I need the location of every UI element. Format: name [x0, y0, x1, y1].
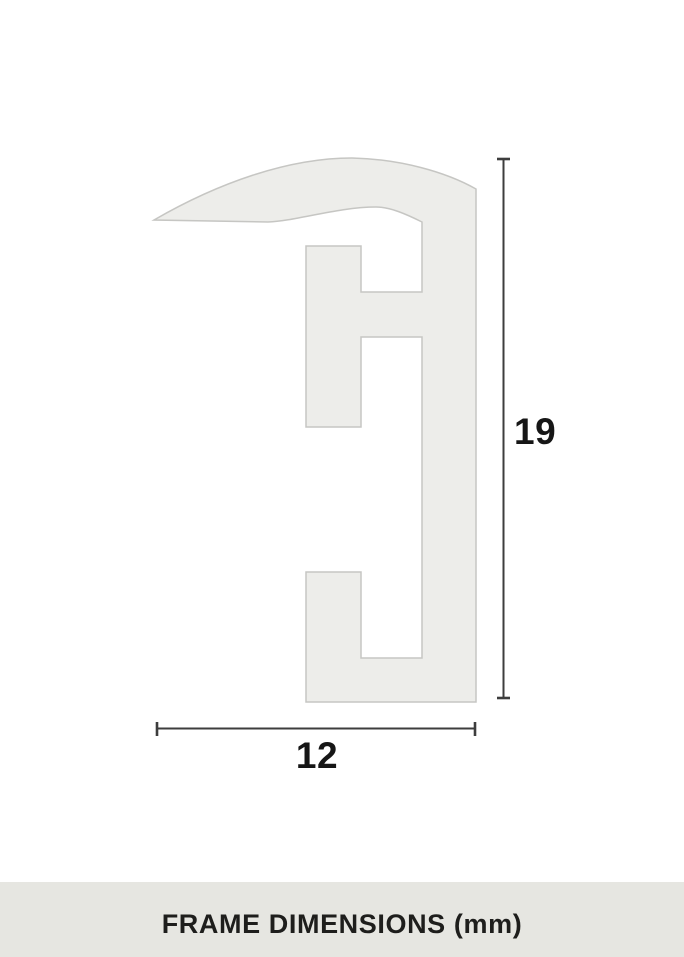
- diagram-area: 19 12: [0, 0, 684, 882]
- frame-profile-diagram-svg: 19 12: [0, 0, 684, 882]
- width-dimension-label: 12: [296, 735, 338, 776]
- frame-profile-shape: [154, 158, 476, 702]
- height-dimension-label: 19: [514, 411, 556, 452]
- footer-caption: FRAME DIMENSIONS (mm): [162, 909, 523, 940]
- frame-dimensions-screen: 19 12 FRAME DIMENSIONS (mm): [0, 0, 684, 957]
- height-dimension: 19: [497, 159, 556, 698]
- footer-bar: FRAME DIMENSIONS (mm): [0, 882, 684, 957]
- width-dimension: 12: [157, 722, 475, 776]
